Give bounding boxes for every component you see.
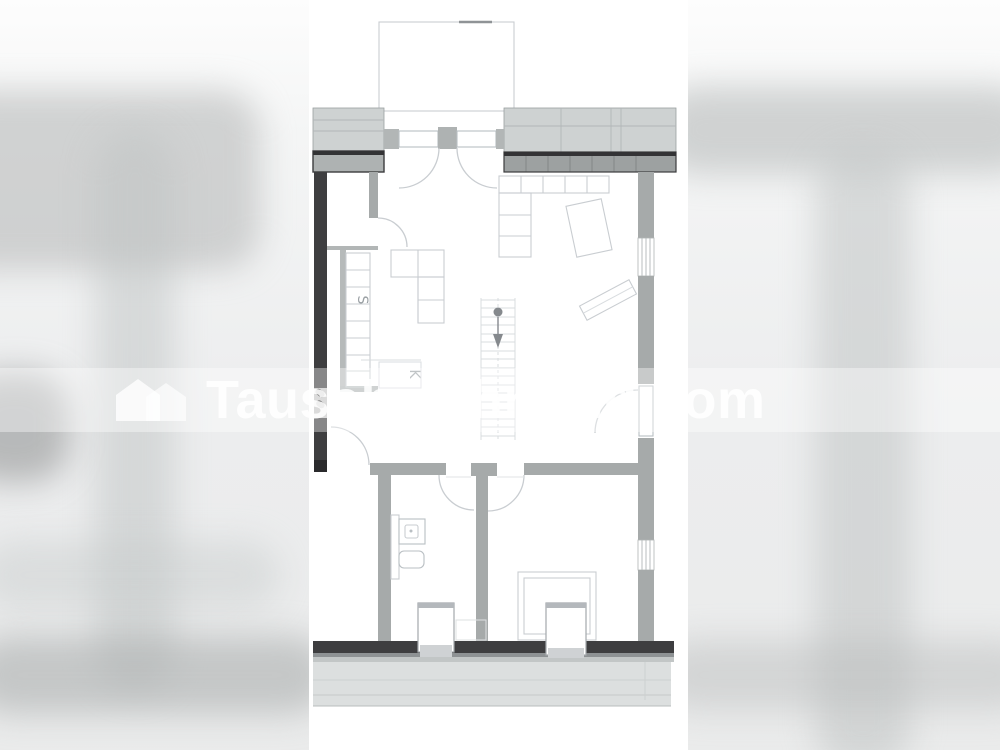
room-divider-wall bbox=[476, 476, 488, 642]
wall-light-block bbox=[504, 108, 676, 152]
interior-wall-stub bbox=[369, 172, 378, 218]
door-jamb bbox=[496, 129, 504, 149]
wall-end-cap bbox=[314, 460, 327, 472]
blur-blob bbox=[0, 540, 280, 610]
bay-sill bbox=[548, 648, 584, 658]
door-leaf bbox=[457, 131, 496, 147]
patio-edge-dark bbox=[313, 653, 674, 657]
bath-window-bay bbox=[418, 603, 454, 652]
wall-band-edge bbox=[313, 151, 384, 155]
door-swing-arc bbox=[399, 148, 439, 188]
terrace-outline bbox=[379, 22, 514, 111]
vanity-strip bbox=[391, 515, 399, 579]
hall-post-cap bbox=[471, 463, 497, 476]
wall-segment bbox=[638, 172, 654, 238]
bay-head bbox=[546, 603, 586, 608]
counter-L bbox=[391, 250, 444, 323]
bottom-wall bbox=[313, 641, 674, 653]
house-shape bbox=[146, 383, 186, 421]
terrace-french-door bbox=[384, 127, 504, 188]
counter-wall-line bbox=[327, 246, 378, 250]
blur-blob bbox=[687, 640, 1000, 710]
wall-segment bbox=[638, 438, 654, 540]
toilet bbox=[399, 551, 424, 568]
bath-left-wall bbox=[378, 475, 391, 642]
door-swing-arc bbox=[378, 218, 407, 247]
stair-start-dot bbox=[494, 308, 503, 317]
bottom-wall-patio bbox=[313, 641, 674, 706]
floorplan-photo: S K bbox=[0, 0, 1000, 750]
wall-light-block bbox=[313, 108, 384, 151]
door-mullion bbox=[438, 127, 457, 149]
door-swing-arc bbox=[488, 475, 524, 511]
top-left-wall bbox=[313, 108, 384, 172]
watermark-logo-icon bbox=[108, 373, 192, 427]
watermark-text: Tauschwohnung.com bbox=[206, 369, 766, 431]
basin-drain bbox=[410, 530, 413, 533]
label-sink: S bbox=[354, 296, 370, 305]
door-swing-arc bbox=[439, 475, 474, 510]
bay-head bbox=[418, 603, 454, 608]
watermark: Tauschwohnung.com bbox=[108, 368, 908, 432]
hall-wall-left bbox=[370, 463, 446, 475]
top-right-wall bbox=[504, 108, 676, 172]
blur-blob bbox=[0, 636, 309, 714]
wall-segment bbox=[638, 570, 654, 642]
stair-direction-arrow bbox=[493, 334, 503, 348]
door-swing-arc bbox=[331, 427, 369, 465]
cabinet-run bbox=[346, 253, 370, 387]
door-jamb bbox=[384, 129, 399, 149]
door-leaf bbox=[399, 131, 438, 147]
hall-wall-right bbox=[524, 463, 638, 475]
lounge-chair bbox=[566, 199, 612, 257]
living-room-furniture bbox=[499, 176, 636, 320]
terrace-rect bbox=[379, 22, 514, 111]
door-swing-arc bbox=[457, 148, 497, 188]
corner-sofa bbox=[499, 176, 609, 257]
wall-band-edge bbox=[504, 152, 676, 156]
bedroom-window-bay bbox=[546, 603, 586, 655]
patio-edge bbox=[313, 657, 674, 662]
patio-slab bbox=[313, 662, 671, 706]
sideboard bbox=[580, 280, 637, 320]
bay-sill bbox=[420, 645, 452, 657]
